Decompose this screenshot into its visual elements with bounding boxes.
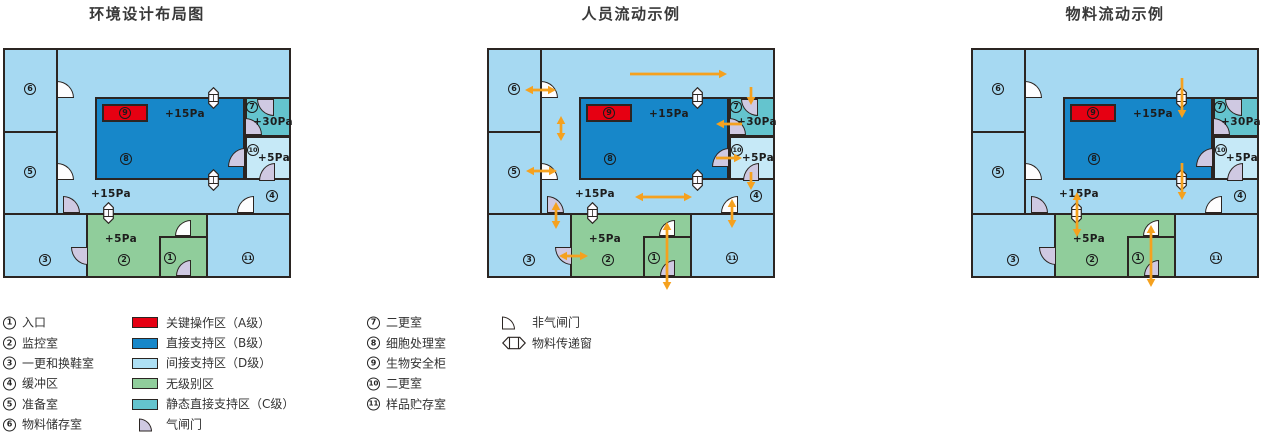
legend-number-badge: 1: [3, 316, 16, 329]
legend-number-badge: 2: [3, 337, 16, 350]
wall-segment: [3, 213, 291, 215]
wall-segment: [86, 213, 88, 278]
wall-segment: [159, 236, 208, 238]
legend-label: 间接支持区（D级）: [166, 357, 271, 369]
wall-segment: [3, 131, 58, 133]
wall-segment: [1127, 236, 1176, 238]
room-number-badge: 6: [992, 83, 1004, 95]
room-number-badge: 8: [1088, 153, 1100, 165]
room-number-badge: 1: [164, 252, 176, 264]
legend-label: 物料传递窗: [532, 337, 592, 349]
pressure-label: +5Pa: [258, 153, 290, 164]
legend-item: 10二更室: [367, 377, 422, 390]
legend-item: 5准备室: [3, 398, 58, 411]
wall-segment: [643, 236, 692, 238]
legend-label: 无级别区: [166, 378, 214, 390]
room-number-badge: 3: [523, 254, 535, 266]
pressure-label: +30Pa: [253, 117, 293, 128]
wall-segment: [487, 131, 542, 133]
legend-item: 间接支持区（D级）: [132, 357, 271, 369]
room-number-badge: 11: [1210, 252, 1222, 264]
legend-item: 2监控室: [3, 337, 58, 350]
plan-personnel-flow: 6532111489710+15Pa+30Pa+5Pa+15Pa+5Pa: [487, 48, 775, 278]
legend-label: 二更室: [386, 378, 422, 390]
wall-segment: [1174, 213, 1176, 278]
legend-label: 入口: [22, 317, 46, 329]
room-number-badge: 6: [508, 83, 520, 95]
legend-item: 11样品贮存室: [367, 398, 446, 411]
pressure-label: +15Pa: [91, 189, 131, 200]
legend-number-badge: 7: [367, 316, 380, 329]
pressure-label: +15Pa: [649, 109, 689, 120]
wall-segment: [971, 131, 1026, 133]
wall-segment: [971, 213, 1259, 215]
pressure-label: +5Pa: [1226, 153, 1258, 164]
legend-item: 6物料储存室: [3, 418, 82, 431]
room-number-badge: 5: [24, 166, 36, 178]
legend-label: 关键操作区（A级）: [166, 317, 270, 329]
wall-segment: [570, 213, 572, 278]
legend-number-badge: 5: [3, 398, 16, 411]
transfer-window-icon: [208, 87, 219, 109]
room-number-badge: 11: [242, 252, 254, 264]
legend-label: 静态直接支持区（C级）: [166, 398, 294, 410]
room-number-badge: 5: [992, 166, 1004, 178]
room-number-badge: 11: [726, 252, 738, 264]
legend-item: 物料传递窗: [502, 337, 592, 350]
legend-item: 静态直接支持区（C级）: [132, 398, 294, 410]
transfer-window-icon: [692, 169, 703, 191]
room-number-badge: 9: [603, 107, 615, 119]
pressure-label: +15Pa: [1059, 189, 1099, 200]
transfer-window-icon: [1176, 87, 1187, 109]
legend-label: 缓冲区: [22, 378, 58, 390]
legend-label: 准备室: [22, 398, 58, 410]
wall-segment: [206, 213, 208, 278]
pressure-label: +5Pa: [105, 234, 137, 245]
pressure-label: +5Pa: [589, 234, 621, 245]
wall-segment: [1127, 236, 1129, 278]
wall-segment: [690, 213, 692, 278]
room-number-badge: 9: [1087, 107, 1099, 119]
legend-number-badge: 11: [367, 398, 380, 411]
non-airlock-door-icon: [502, 316, 515, 329]
legend-swatch: [132, 338, 158, 349]
legend-item: 气闸门: [132, 418, 202, 431]
legend-label: 直接支持区（B级）: [166, 337, 270, 349]
legend-item: 9生物安全柜: [367, 357, 446, 370]
room-number-badge: 4: [1234, 190, 1246, 202]
legend-item: 3一更和换鞋室: [3, 357, 94, 370]
legend-label: 一更和换鞋室: [22, 357, 94, 369]
wall-segment: [1054, 213, 1056, 278]
room-number-badge: 2: [602, 254, 614, 266]
room-number-badge: 5: [508, 166, 520, 178]
room-number-badge: 3: [39, 254, 51, 266]
legend-item: 7二更室: [367, 316, 422, 329]
wall-segment: [643, 236, 645, 278]
legend-number-badge: 3: [3, 357, 16, 370]
legend-item: 无级别区: [132, 378, 214, 390]
room-number-badge: 8: [604, 153, 616, 165]
room-number-badge: 1: [648, 252, 660, 264]
legend-item: 关键操作区（A级）: [132, 317, 270, 329]
plan-material-flow: 6532111489710+15Pa+30Pa+5Pa+15Pa+5Pa: [971, 48, 1259, 278]
wall-segment: [159, 236, 161, 278]
non-airlock-door-icon: [502, 316, 526, 329]
transfer-window-icon: [692, 87, 703, 109]
pressure-label: +30Pa: [1221, 117, 1261, 128]
airlock-door-icon: [132, 418, 158, 431]
legend-label: 生物安全柜: [386, 357, 446, 369]
cleanroom-layout-figure: 环境设计布局图 人员流动示例 物料流动示例 6532111489710+15Pa…: [0, 0, 1264, 437]
legend-item: 直接支持区（B级）: [132, 337, 270, 349]
legend-number-badge: 6: [3, 418, 16, 431]
transfer-window-icon: [208, 169, 219, 191]
pressure-label: +5Pa: [742, 153, 774, 164]
legend-label: 监控室: [22, 337, 58, 349]
legend-label: 样品贮存室: [386, 398, 446, 410]
pressure-label: +30Pa: [737, 117, 777, 128]
legend-label: 细胞处理室: [386, 337, 446, 349]
room-number-badge: 4: [266, 190, 278, 202]
room-number-badge: 3: [1007, 254, 1019, 266]
room-number-badge: 9: [119, 107, 131, 119]
pressure-label: +15Pa: [165, 109, 205, 120]
legend-swatch: [132, 358, 158, 369]
room-number-badge: 4: [750, 190, 762, 202]
room-number-badge: 2: [1086, 254, 1098, 266]
legend-item: 8细胞处理室: [367, 337, 446, 350]
legend-label: 气闸门: [166, 419, 202, 431]
legend-item: 非气闸门: [502, 316, 580, 329]
panel-title-material-flow: 物料流动示例: [1065, 3, 1164, 24]
room-number-badge: 7: [246, 101, 258, 113]
transfer-window-icon: [502, 337, 526, 350]
legend-swatch: [132, 378, 158, 389]
transfer-window-icon: [587, 202, 598, 224]
panel-title-personnel-flow: 人员流动示例: [581, 3, 680, 24]
legend-number-badge: 8: [367, 337, 380, 350]
room-number-badge: 6: [24, 83, 36, 95]
legend-label: 二更室: [386, 317, 422, 329]
transfer-window-icon: [1176, 169, 1187, 191]
transfer-window-icon: [103, 202, 114, 224]
airlock-door-icon: [139, 418, 152, 431]
room-number-badge: 7: [730, 101, 742, 113]
room-number-badge: 1: [1132, 252, 1144, 264]
legend-number-badge: 4: [3, 377, 16, 390]
legend-swatch: [132, 317, 158, 328]
room-number-badge: 2: [118, 254, 130, 266]
legend-number-badge: 10: [367, 377, 380, 390]
legend-item: 1入口: [3, 316, 46, 329]
panel-title-environment-layout: 环境设计布局图: [89, 3, 205, 24]
transfer-window-icon: [1071, 202, 1082, 224]
legend-item: 4缓冲区: [3, 377, 58, 390]
room-number-badge: 8: [120, 153, 132, 165]
pressure-label: +15Pa: [1133, 109, 1173, 120]
legend-label: 物料储存室: [22, 419, 82, 431]
wall-segment: [487, 213, 775, 215]
legend-swatch: [132, 399, 158, 410]
legend-number-badge: 9: [367, 357, 380, 370]
pressure-label: +15Pa: [575, 189, 615, 200]
pressure-label: +5Pa: [1073, 234, 1105, 245]
plan-environment-layout: 6532111489710+15Pa+30Pa+5Pa+15Pa+5Pa: [3, 48, 291, 278]
room-number-badge: 7: [1214, 101, 1226, 113]
legend-label: 非气闸门: [532, 317, 580, 329]
transfer-window-icon: [502, 337, 526, 350]
